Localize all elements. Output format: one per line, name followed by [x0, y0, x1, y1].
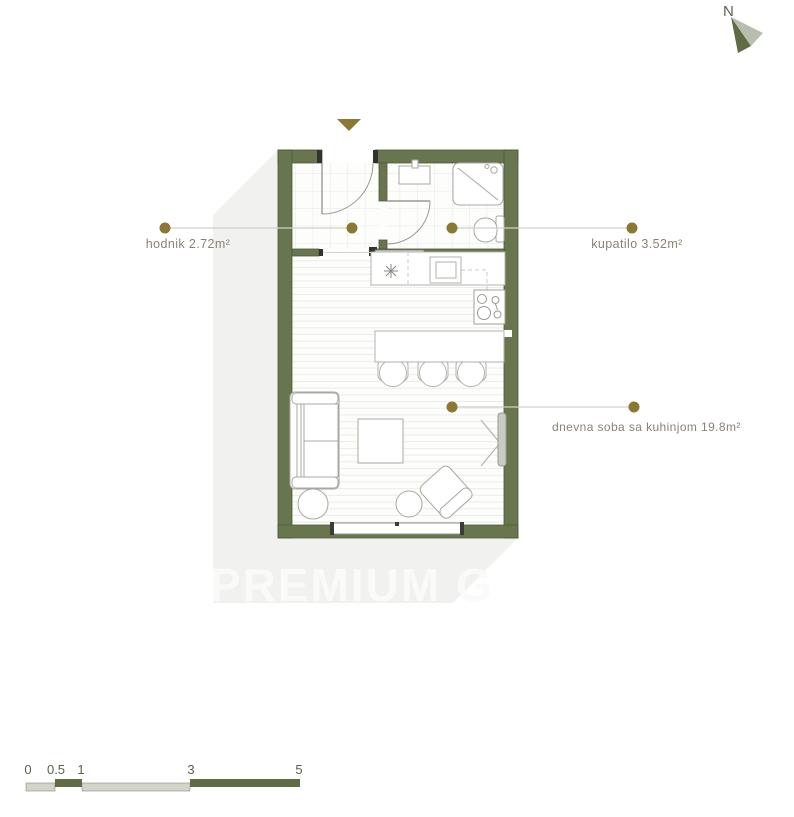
scale-tick-3: 3 — [187, 762, 194, 777]
top-wall-right — [375, 150, 518, 163]
bath-partition-stub — [379, 240, 387, 249]
watermark-text: PREMIUM G — [210, 558, 494, 612]
floor-plan-drawing — [0, 0, 794, 817]
floor-plan-canvas: PREMIUM G N hodnik 2.72m² kupatilo 3.52m… — [0, 0, 794, 817]
sink-tap-icon — [412, 160, 418, 168]
north-arrow-icon — [731, 17, 763, 53]
scale-tick-5: 5 — [295, 762, 302, 777]
scale-tick-05: 0.5 — [47, 762, 65, 777]
scale-tick-1: 1 — [77, 762, 84, 777]
tv-screen — [498, 413, 506, 466]
sofa-armrest-top — [292, 393, 338, 404]
scale-tick-0: 0 — [24, 762, 31, 777]
bath-partition-top — [379, 163, 387, 201]
entry-marker-icon — [337, 119, 361, 131]
scale-bar — [26, 779, 300, 791]
stove — [474, 290, 505, 324]
hallway-floor — [292, 163, 379, 249]
kitchen-sink-basin — [436, 262, 456, 278]
right-wall — [504, 150, 518, 538]
sofa — [290, 392, 339, 489]
sofa-armrest-bottom — [292, 477, 338, 488]
hob-icon — [384, 264, 398, 278]
shower-head-icon — [491, 167, 497, 173]
bar-stools — [378, 359, 486, 387]
sink — [399, 166, 430, 184]
hall-partition-left — [292, 249, 319, 256]
shower-mixer-icon — [485, 165, 489, 169]
toilet-bowl — [474, 218, 497, 242]
room-label-kupatilo: kupatilo 3.52m² — [582, 237, 692, 251]
window — [330, 522, 464, 535]
coffee-table — [358, 419, 403, 463]
kitchen-island — [375, 331, 504, 362]
room-label-hodnik: hodnik 2.72m² — [133, 237, 243, 251]
round-table — [396, 491, 422, 517]
side-table-round — [298, 489, 328, 519]
room-label-dnevna-soba: dnevna soba sa kuhinjom 19.8m² — [552, 420, 722, 434]
north-label: N — [723, 3, 734, 20]
